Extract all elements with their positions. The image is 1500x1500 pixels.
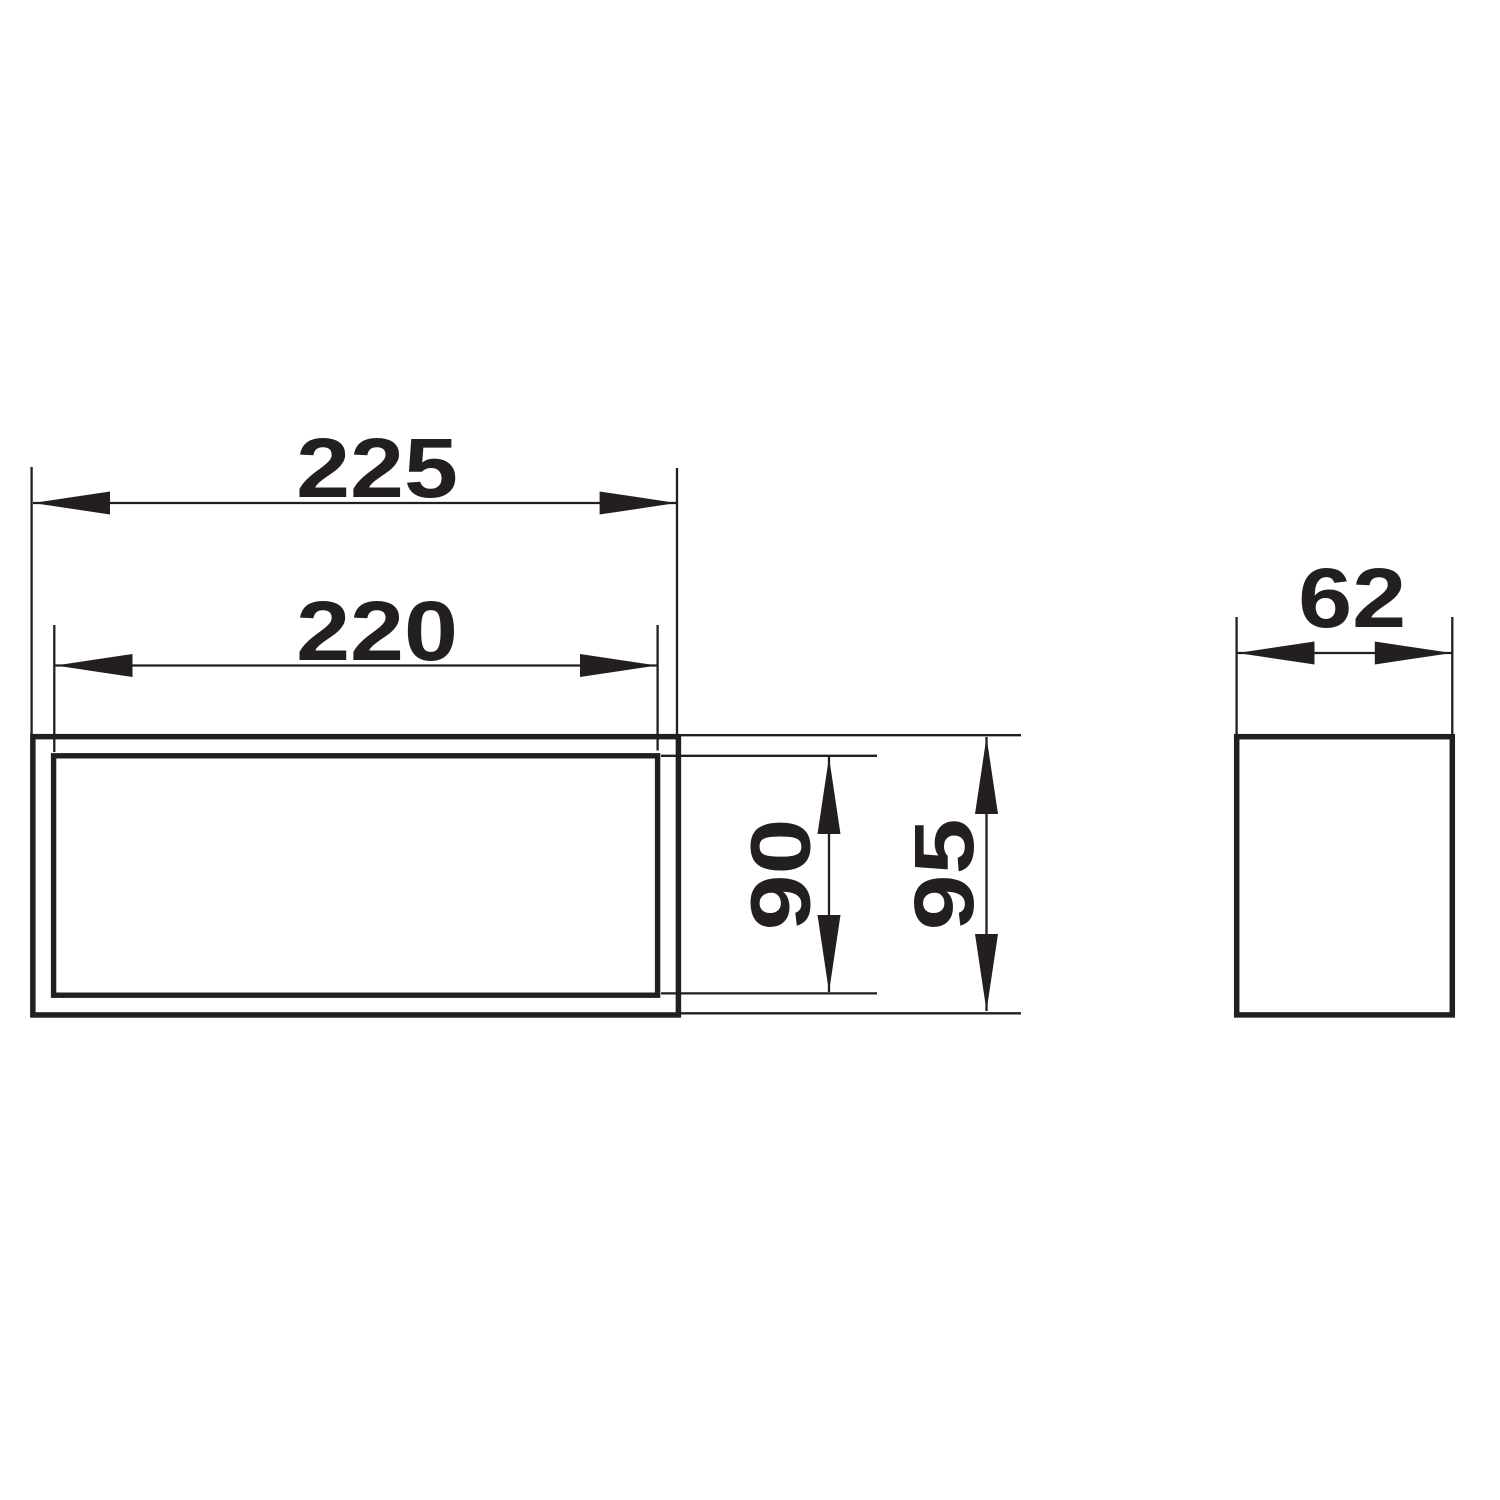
svg-text:62: 62	[1298, 552, 1406, 645]
svg-text:90: 90	[733, 818, 827, 930]
svg-text:220: 220	[296, 585, 458, 678]
svg-text:95: 95	[897, 818, 991, 930]
svg-text:225: 225	[296, 422, 458, 515]
